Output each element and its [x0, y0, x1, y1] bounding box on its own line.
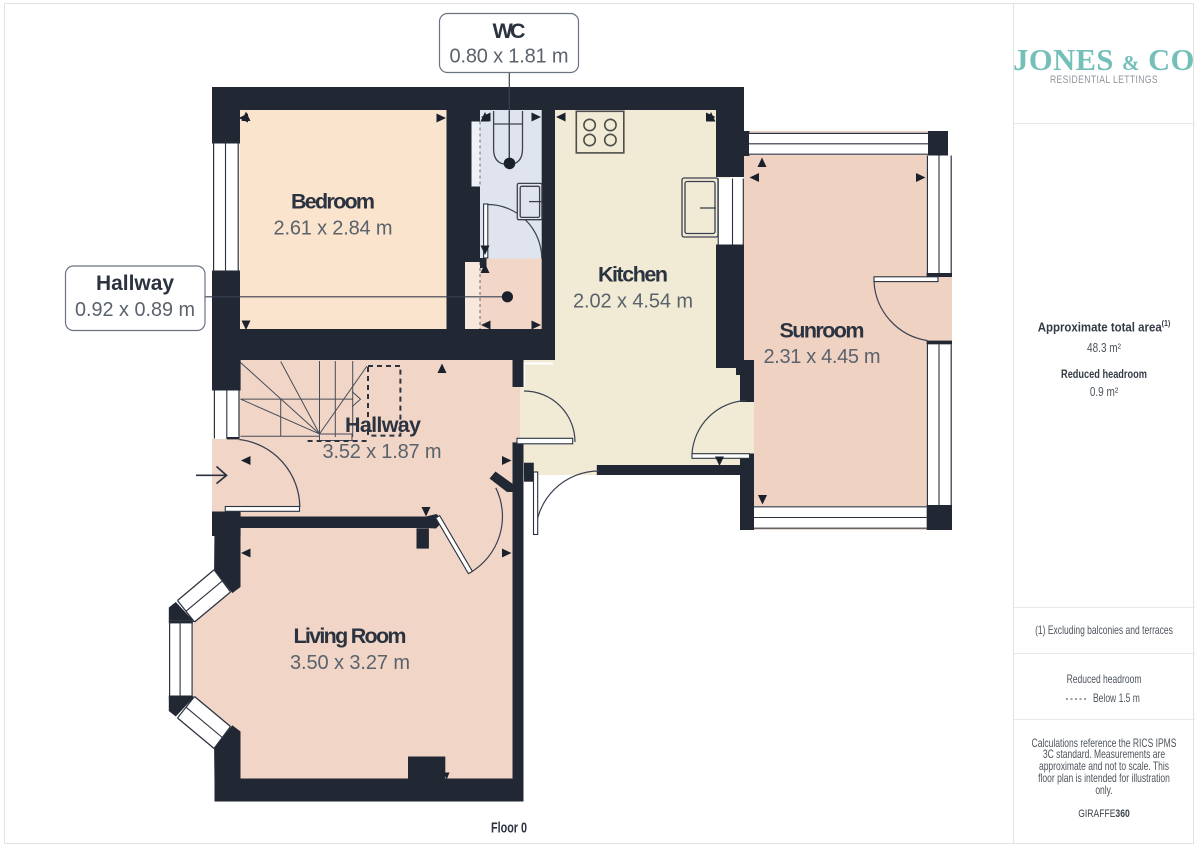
svg-text:Sunroom: Sunroom	[780, 319, 865, 343]
svg-text:WC: WC	[493, 19, 526, 43]
svg-text:0.92 x 0.89 m: 0.92 x 0.89 m	[75, 299, 195, 321]
svg-text:Bedroom: Bedroom	[291, 190, 375, 214]
svg-text:Kitchen: Kitchen	[598, 263, 668, 287]
svg-text:Hallway: Hallway	[345, 413, 421, 437]
svg-text:3.50 x 3.27 m: 3.50 x 3.27 m	[290, 652, 410, 674]
svg-text:2.61 x 2.84 m: 2.61 x 2.84 m	[274, 218, 393, 240]
svg-text:0.80 x 1.81 m: 0.80 x 1.81 m	[450, 46, 569, 68]
svg-text:Hallway: Hallway	[96, 271, 174, 295]
svg-text:Living Room: Living Room	[294, 624, 407, 648]
svg-text:Floor 0: Floor 0	[491, 820, 527, 837]
svg-text:2.02 x 4.54 m: 2.02 x 4.54 m	[573, 291, 693, 313]
svg-text:2.31 x 4.45 m: 2.31 x 4.45 m	[764, 346, 881, 368]
svg-text:3.52 x 1.87 m: 3.52 x 1.87 m	[323, 441, 442, 463]
